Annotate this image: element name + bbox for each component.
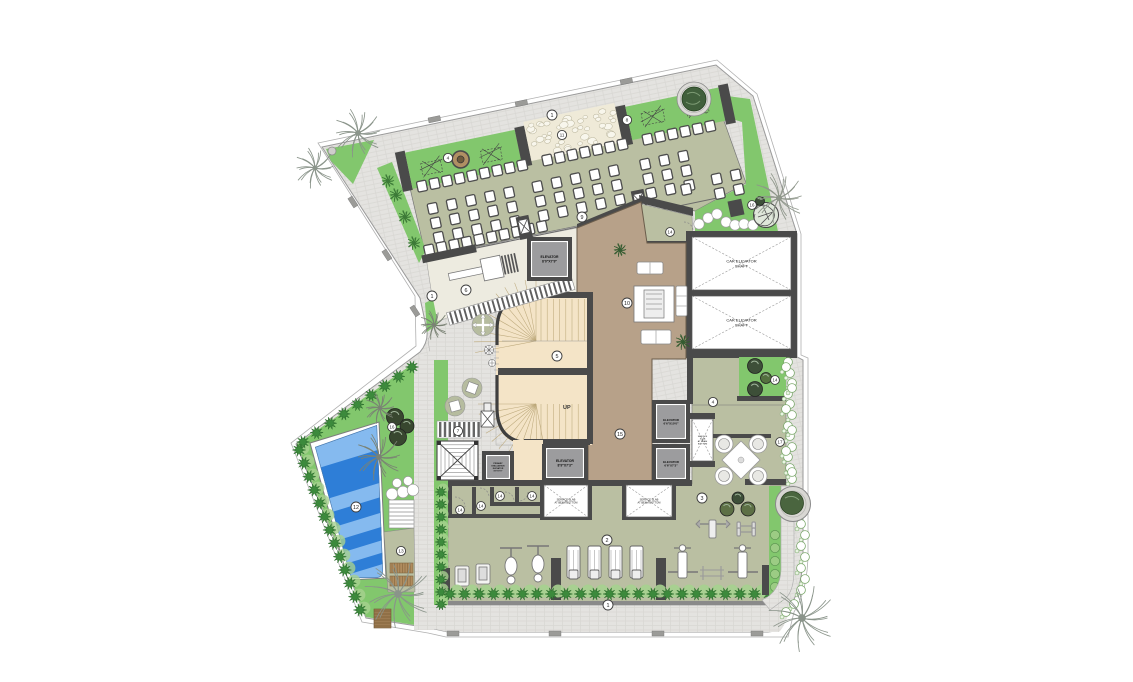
svg-text:8’0″X7’9″: 8’0″X7’9″ [542,259,557,263]
svg-text:1: 1 [607,603,610,609]
svg-text:11: 11 [560,133,565,138]
svg-text:16: 16 [390,425,395,430]
svg-text:SHAFT: SHAFT [735,322,749,327]
svg-text:4: 4 [447,156,450,162]
svg-text:16: 16 [750,203,755,208]
svg-text:15: 15 [617,432,623,438]
svg-text:5: 5 [556,354,559,360]
svg-text:6: 6 [465,288,468,294]
svg-text:14: 14 [773,378,778,383]
svg-text:12: 12 [353,505,359,511]
svg-text:SHAFT: SHAFT [735,263,749,268]
svg-text:14: 14 [479,504,484,509]
svg-text:8: 8 [626,118,629,124]
svg-text:UP: UP [563,405,571,411]
svg-text:17: 17 [778,440,783,445]
svg-text:14: 14 [530,494,535,499]
svg-text:BOTTOM: BOTTOM [698,444,707,446]
svg-text:1: 1 [431,294,434,300]
svg-text:AT BEAM: AT BEAM [698,440,708,443]
svg-text:14: 14 [668,230,673,235]
svg-text:7: 7 [457,429,460,435]
svg-text:6’6″X7’3″: 6’6″X7’3″ [664,464,678,468]
svg-text:4: 4 [712,400,715,406]
svg-text:AT BEAM BOTTOM: AT BEAM BOTTOM [638,501,661,505]
svg-text:10: 10 [624,301,630,307]
svg-text:14: 14 [458,508,463,513]
svg-text:9: 9 [581,215,584,221]
svg-text:2: 2 [606,538,609,544]
svg-text:6’6″X10’0″: 6’6″X10’0″ [664,422,679,426]
svg-text:14: 14 [498,494,503,499]
svg-text:3: 3 [701,496,704,502]
svg-text:1: 1 [551,113,554,119]
svg-text:8’9″X7’3″: 8’9″X7’3″ [558,463,573,467]
svg-text:8’9″X7’0″: 8’9″X7’0″ [494,471,503,473]
svg-text:13: 13 [398,549,404,555]
svg-text:AT BEAM BOTTOM: AT BEAM BOTTOM [555,501,578,505]
svg-text:SLAB: SLAB [700,437,706,440]
